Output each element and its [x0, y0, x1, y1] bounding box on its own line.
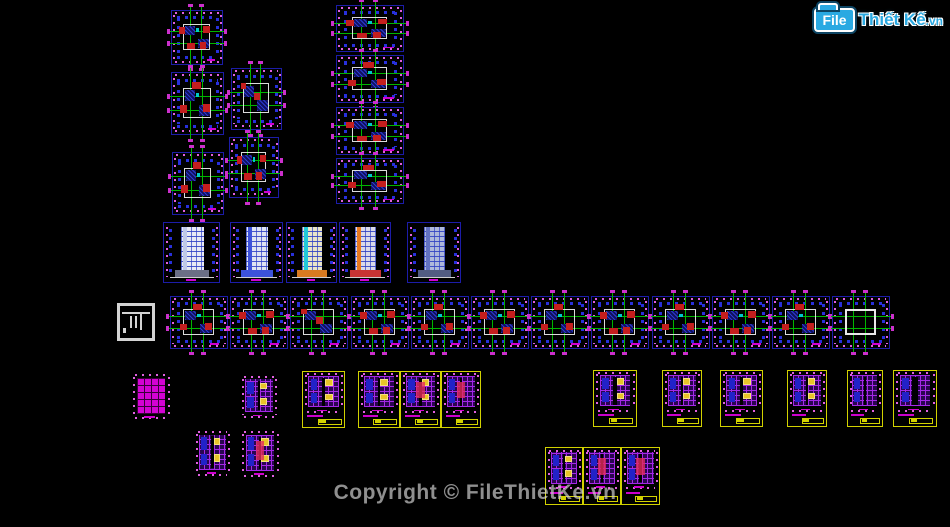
column-ticks [358, 304, 361, 340]
magenta-line [851, 414, 864, 416]
detail-sheet-8[interactable] [787, 370, 827, 427]
sheet-title [360, 279, 369, 281]
dimension-ticks [338, 163, 340, 200]
dimension-ticks [826, 301, 828, 344]
dimension-ticks [633, 374, 635, 409]
hatch-area [606, 311, 617, 320]
blue-block [854, 378, 860, 389]
column-ticks [581, 304, 584, 340]
dimension-ticks [598, 372, 632, 374]
blue-block [602, 378, 609, 389]
dimension-ticks [277, 434, 279, 474]
red-block [600, 312, 607, 319]
column-ticks [216, 18, 219, 55]
cyan-block [368, 21, 372, 24]
column-ticks [344, 114, 347, 146]
sheet-title [752, 343, 761, 345]
red-block [241, 83, 246, 89]
dim-strip [342, 227, 344, 278]
accent-stripe [357, 227, 361, 272]
dimension-ticks [535, 298, 584, 300]
red-block [507, 311, 515, 318]
dimension-ticks [355, 298, 404, 300]
dimension-ticks [305, 375, 307, 410]
dimension-ticks [596, 374, 598, 409]
yellow-patch [683, 378, 690, 384]
red-block [180, 324, 187, 331]
column-ticks [659, 304, 662, 340]
plan-area [790, 372, 825, 412]
dimension-ticks [176, 154, 220, 156]
yellow-patch [743, 378, 751, 384]
sheet-title [511, 343, 520, 345]
dim-strip [384, 229, 387, 276]
blue-block [311, 393, 318, 403]
dim-strip [387, 227, 389, 278]
floor-plan-r3[interactable] [290, 296, 348, 349]
dimension-ticks [415, 298, 464, 300]
column-ticks [394, 12, 397, 44]
dimension-ticks [593, 301, 595, 344]
elevation-5[interactable] [407, 222, 461, 283]
red-block [237, 156, 243, 164]
floor-plan-r8[interactable] [591, 296, 649, 349]
detail-sheet-7[interactable] [720, 370, 763, 427]
sheet-title [372, 410, 382, 412]
red-block [795, 304, 804, 310]
floor-plan-r9[interactable] [652, 296, 710, 349]
floor-plan-t1[interactable] [336, 5, 404, 52]
dimension-ticks [234, 298, 283, 300]
column-ticks [216, 82, 219, 125]
column-ticks [237, 77, 240, 119]
sheet-title [391, 343, 400, 345]
dimension-ticks [933, 374, 935, 409]
framing-plan-1[interactable] [242, 376, 276, 418]
sheet-title [383, 149, 394, 151]
dimension-ticks [444, 375, 446, 410]
dimension-ticks [233, 139, 275, 141]
red-block [346, 20, 354, 26]
dim-strip [236, 229, 239, 276]
red-block [205, 323, 213, 330]
dim-strip [291, 229, 294, 276]
floor-plan-r10[interactable] [712, 296, 770, 349]
dimension-ticks [656, 452, 658, 487]
blue-block [591, 469, 597, 479]
red-block [203, 104, 210, 113]
floor-plan-r6[interactable] [471, 296, 529, 349]
dimension-ticks [716, 298, 765, 300]
dimension-ticks [294, 298, 343, 300]
sheet-title [908, 409, 919, 411]
blue-block [670, 392, 676, 402]
center-gap [912, 377, 918, 405]
column-ticks [344, 12, 347, 44]
elevation-4[interactable] [339, 222, 391, 283]
sheet-title [270, 343, 279, 345]
dimension-ticks [834, 301, 836, 344]
sheet-title [207, 59, 215, 61]
dimension-ticks [879, 374, 881, 409]
red-block [721, 312, 728, 319]
cyan-block [618, 314, 621, 318]
blue-block [670, 378, 676, 389]
dimension-ticks [415, 345, 464, 347]
column-ticks [272, 146, 275, 187]
column-ticks [177, 16, 217, 19]
cyan-block [679, 314, 682, 318]
floor-plan-c4[interactable] [172, 152, 224, 215]
dimension-ticks [175, 61, 219, 63]
dimension-ticks [665, 374, 667, 409]
dimension-ticks [400, 60, 402, 99]
red-block [554, 304, 563, 310]
dimension-ticks [234, 345, 283, 347]
dimension-ticks [898, 372, 932, 374]
blue-block [902, 392, 909, 402]
title-block-fill [678, 419, 684, 422]
hatch-area [245, 311, 256, 320]
cad-canvas[interactable]: Copyright © FileThietKe.vn File Thiết Kế… [0, 0, 950, 527]
sheet-title [801, 409, 811, 411]
column-ticks [702, 304, 705, 340]
blue-block [553, 455, 559, 466]
sheet-title [144, 416, 155, 418]
blue-block [248, 437, 254, 450]
dimension-ticks [585, 301, 587, 344]
column-ticks [235, 146, 238, 187]
dimension-ticks [626, 450, 656, 452]
dim-strip [166, 227, 168, 278]
detail-sheet-3[interactable] [400, 371, 441, 428]
sheet-title [872, 343, 881, 345]
floor-plan-t4[interactable] [336, 158, 404, 204]
dimension-ticks [228, 434, 230, 474]
plan-area [403, 373, 439, 413]
red-block [623, 327, 630, 334]
floor-plan-r1[interactable] [170, 296, 228, 349]
plan-area [723, 372, 761, 412]
sheet-title [383, 47, 394, 49]
dim-strip [216, 227, 218, 278]
dimension-ticks [235, 125, 278, 127]
dimension-ticks [698, 374, 700, 409]
dimension-ticks [533, 301, 535, 344]
detail-sheet-4[interactable] [441, 371, 481, 428]
red-block [193, 304, 202, 310]
red-block [360, 312, 367, 319]
column-ticks [358, 302, 403, 305]
elevation-3[interactable] [286, 222, 337, 283]
dimension-ticks [353, 301, 355, 344]
dimension-ticks [173, 15, 175, 60]
dimension-ticks [475, 298, 524, 300]
icon-line [122, 312, 150, 314]
dimension-ticks [723, 374, 725, 409]
dimension-ticks [595, 298, 644, 300]
dim-strip [279, 227, 281, 278]
detail-sheet-13[interactable] [621, 447, 660, 505]
column-ticks [538, 304, 541, 340]
elevation-1[interactable] [163, 222, 220, 283]
dimension-ticks [338, 60, 340, 99]
red-block [248, 328, 257, 334]
dimension-ticks [173, 78, 175, 129]
accent-stripe [426, 227, 430, 272]
dimension-ticks [341, 48, 399, 50]
floor-plan-c1[interactable] [171, 10, 223, 65]
cyan-block [438, 314, 441, 318]
red-block [489, 328, 498, 334]
building-base [418, 270, 450, 277]
dimension-ticks [790, 374, 792, 409]
dimension-ticks [465, 301, 467, 344]
column-ticks [177, 82, 180, 125]
blue-block [366, 379, 373, 390]
title-block-fill [862, 419, 867, 422]
icon-tick [130, 316, 132, 329]
dimension-ticks [766, 301, 768, 344]
dimension-ticks [175, 74, 220, 76]
column-ticks [882, 304, 885, 340]
yellow-patch [325, 379, 333, 385]
yellow-patch [808, 378, 815, 384]
center-gap [864, 377, 867, 405]
floor-plan-c2[interactable] [171, 72, 224, 135]
hatch-area [546, 311, 557, 320]
elevation-2[interactable] [230, 222, 283, 283]
column-ticks [641, 304, 644, 340]
building-base [297, 270, 327, 277]
dimension-ticks [446, 373, 477, 375]
detail-sheet-5[interactable] [593, 370, 637, 427]
dimension-ticks [341, 200, 399, 202]
dimension-ticks [341, 57, 399, 59]
blue-block [729, 392, 736, 402]
dimension-ticks [244, 431, 276, 433]
framing-plan-2[interactable] [196, 431, 229, 476]
detail-sheet-2[interactable] [358, 371, 400, 428]
title-block [635, 496, 656, 502]
dim-strip [333, 227, 335, 278]
cyan-block [197, 173, 200, 177]
logo-file-text: File [822, 12, 846, 28]
sheet-title [208, 128, 216, 130]
floor-plan-r5[interactable] [411, 296, 469, 349]
dimension-ticks [220, 15, 222, 60]
dimension-ticks [196, 434, 198, 474]
yellow-patch [260, 398, 267, 405]
dimension-ticks [244, 376, 274, 378]
red-block [378, 121, 387, 127]
yellow-patch [214, 454, 221, 461]
folder-icon: File [814, 8, 854, 32]
detail-sheet-10[interactable] [893, 370, 937, 427]
hot-area [256, 441, 265, 460]
dimension-ticks [233, 193, 275, 195]
sheet-title [330, 343, 339, 345]
dimension-ticks [645, 301, 647, 344]
detail-sheet-1[interactable] [302, 371, 345, 428]
floor-plan-r2[interactable] [230, 296, 288, 349]
dimension-ticks [475, 345, 524, 347]
column-ticks [297, 302, 342, 305]
grid-body [137, 378, 166, 414]
floor-plan-c5[interactable] [229, 137, 279, 198]
blue-block [201, 437, 207, 450]
blue-block [795, 378, 801, 389]
blue-block [553, 469, 559, 479]
red-block [179, 27, 185, 34]
sheet-title [455, 410, 465, 412]
column-ticks [237, 304, 240, 340]
red-block [627, 311, 635, 318]
red-block [316, 317, 324, 323]
red-block [748, 311, 756, 318]
red-block [687, 323, 695, 330]
dimension-ticks [292, 301, 294, 344]
cyan-block [257, 314, 260, 318]
hatch-area [354, 121, 367, 129]
sheet-title [208, 208, 216, 210]
column-ticks [762, 304, 765, 340]
dim-strip [276, 229, 279, 276]
floor-plan-c3[interactable] [231, 68, 282, 130]
title-block [415, 419, 438, 425]
cyan-block [378, 314, 381, 318]
red-block [480, 312, 487, 319]
blue-block [247, 382, 253, 394]
floor-plan-r4[interactable] [351, 296, 409, 349]
column-ticks [344, 113, 397, 116]
dimension-ticks [176, 210, 220, 212]
magenta-line [898, 414, 914, 416]
dimension-ticks [341, 99, 399, 101]
hatch-area [320, 324, 332, 333]
red-block [503, 327, 510, 334]
dimension-ticks [896, 374, 898, 409]
dim-strip [345, 229, 348, 276]
dimension-ticks [279, 74, 281, 124]
dimension-ticks [338, 10, 340, 48]
dimension-ticks [198, 431, 227, 433]
grid-plan[interactable] [133, 374, 169, 419]
sheet-title [251, 279, 260, 281]
dimension-ticks [667, 372, 698, 374]
title-block [677, 418, 699, 424]
title-block-fill [611, 419, 618, 422]
dimension-ticks [759, 374, 761, 409]
dimension-ticks [233, 74, 235, 124]
dimension-ticks [168, 377, 170, 417]
framing-plan-3[interactable] [242, 431, 278, 477]
dimension-ticks [275, 379, 277, 416]
hatch-area [354, 69, 367, 77]
legend-icon[interactable] [117, 303, 155, 341]
red-block [378, 19, 387, 25]
title-block-fill [803, 419, 809, 422]
red-block [662, 324, 669, 331]
plan-area [623, 449, 657, 489]
red-block [200, 42, 206, 49]
dimension-ticks [403, 375, 405, 410]
red-block [421, 324, 428, 331]
title-block-fill [737, 419, 744, 422]
cyan-block [368, 174, 372, 177]
column-ticks [779, 304, 782, 340]
dimension-ticks [355, 345, 404, 347]
dimension-ticks [716, 345, 765, 347]
floor-plan-t3[interactable] [336, 107, 404, 155]
red-block [363, 165, 374, 170]
title-block [318, 419, 342, 425]
dimension-ticks [175, 130, 220, 132]
dimension-ticks [221, 158, 223, 209]
dimension-ticks [224, 301, 226, 344]
blue-block [366, 393, 373, 403]
title-block-fill [417, 420, 423, 423]
detail-sheet-6[interactable] [662, 370, 702, 427]
red-block [180, 105, 187, 113]
red-block [266, 311, 274, 318]
sheet-title [676, 409, 686, 411]
sheet-title [571, 343, 580, 345]
yellow-patch [617, 393, 625, 399]
yellow-patch [380, 394, 387, 400]
building-base [175, 270, 209, 277]
dimension-ticks [437, 375, 439, 410]
column-ticks [822, 304, 825, 340]
dimension-ticks [361, 375, 363, 410]
column-ticks [344, 165, 347, 196]
cyan-block [498, 314, 501, 318]
floor-plan-r7[interactable] [531, 296, 589, 349]
red-block [239, 312, 246, 319]
dimension-ticks [400, 10, 402, 48]
hatch-area [727, 311, 738, 320]
dimension-ticks [405, 301, 407, 344]
floor-plan-t2[interactable] [336, 55, 404, 103]
dim-strip [233, 227, 235, 278]
column-ticks [418, 304, 421, 340]
hatch-area [486, 311, 497, 320]
column-ticks [719, 302, 764, 305]
sheet-title [207, 472, 216, 474]
detail-sheet-9[interactable] [847, 370, 883, 427]
magenta-line [792, 414, 806, 416]
sheet-title [266, 123, 274, 125]
hatch-area [354, 19, 367, 27]
dimension-ticks [396, 375, 398, 410]
floor-plan-r11[interactable] [772, 296, 830, 349]
icon-square [123, 328, 126, 333]
sheet-title [859, 409, 868, 411]
dimension-ticks [836, 345, 885, 347]
magenta-line [626, 492, 640, 494]
dimension-ticks [400, 112, 402, 151]
magenta-line [405, 415, 420, 417]
yellow-patch [380, 379, 387, 385]
dimension-ticks [776, 345, 825, 347]
blue-block [629, 469, 635, 479]
hatch-area [257, 100, 268, 111]
floor-plan-r12[interactable] [832, 296, 890, 349]
dimension-ticks [413, 301, 415, 344]
dimension-ticks [836, 298, 885, 300]
dimension-ticks [725, 372, 758, 374]
dimension-ticks [823, 374, 825, 409]
